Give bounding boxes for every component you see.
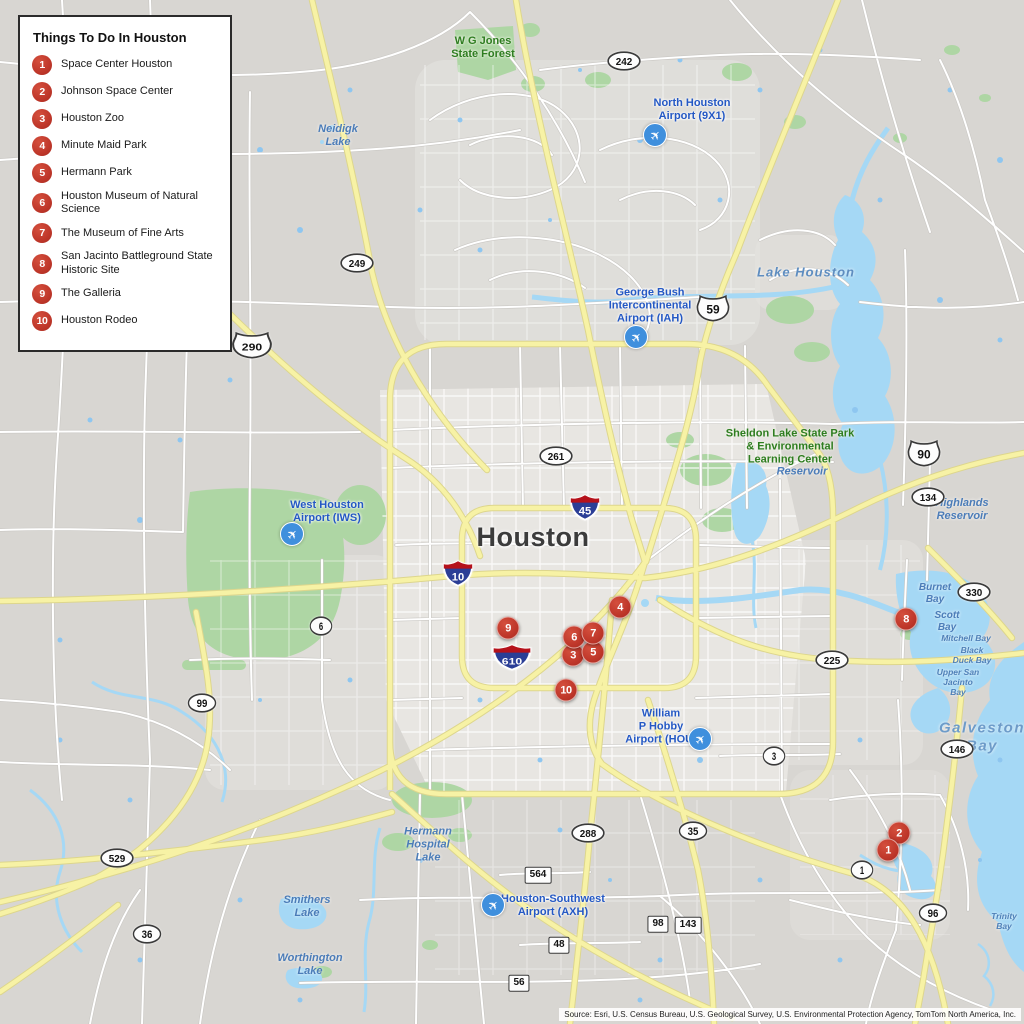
legend-badge-9: 9	[32, 284, 52, 304]
route-shield-59: 59	[697, 294, 730, 323]
label-west-houston-airport: West Houston Airport (IWS)	[290, 499, 364, 525]
svg-text:96: 96	[928, 907, 939, 920]
svg-text:610: 610	[502, 657, 522, 667]
label-neidigk-lake: Neidigk Lake	[318, 123, 358, 149]
legend-badge-3: 3	[32, 109, 52, 129]
svg-text:225: 225	[824, 656, 841, 667]
svg-text:59: 59	[706, 303, 720, 317]
svg-text:45: 45	[579, 505, 591, 517]
route-shield-96: 96	[919, 903, 948, 923]
legend-item-6: 6Houston Museum of Natural Science	[32, 190, 220, 216]
route-shield-48: 48	[548, 937, 569, 954]
legend-title: Things To Do In Houston	[33, 30, 220, 45]
airplane-icon	[624, 325, 648, 349]
label-sheldon-lake-state-park: Sheldon Lake State Park & Environmental …	[726, 428, 854, 467]
route-shield-146: 146	[940, 739, 974, 759]
route-shield-134: 134	[911, 487, 945, 507]
legend-badge-7: 7	[32, 223, 52, 243]
label-burnet-bay: Burnet Bay	[919, 582, 951, 606]
label-houston-southwest-airport: Houston-Southwest Airport (AXH)	[501, 893, 605, 919]
legend-badge-2: 2	[32, 82, 52, 102]
map-marker-4[interactable]: 4	[609, 596, 632, 619]
svg-text:35: 35	[688, 825, 699, 838]
svg-text:10: 10	[452, 571, 464, 583]
svg-text:290: 290	[242, 342, 262, 353]
legend-item-1: 1Space Center Houston	[32, 55, 220, 75]
label-wg-jones-state-forest: W G Jones State Forest	[451, 35, 515, 61]
svg-text:134: 134	[920, 493, 937, 504]
route-shield-99: 99	[188, 693, 217, 713]
airplane-icon	[280, 522, 304, 546]
airplane-icon	[481, 893, 505, 917]
svg-text:90: 90	[917, 448, 931, 462]
route-shield-143: 143	[675, 917, 702, 934]
legend-item-label: Space Center Houston	[61, 58, 172, 71]
legend-item-8: 8San Jacinto Battleground State Historic…	[32, 250, 220, 276]
label-houston-city: Houston	[477, 522, 590, 554]
svg-text:288: 288	[580, 829, 597, 840]
route-shield-330: 330	[957, 582, 991, 602]
legend-item-9: 9The Galleria	[32, 284, 220, 304]
route-shield-290: 290	[232, 331, 272, 360]
label-hermann-hospital-lake: Hermann Hospital Lake	[404, 826, 452, 865]
route-shield-288: 288	[571, 823, 605, 843]
label-black-duck-bay: Black Duck Bay	[953, 645, 992, 665]
svg-text:330: 330	[966, 588, 983, 599]
label-upper-san-jacinto-bay: Upper San Jacinto Bay	[937, 667, 980, 697]
route-shield-10: 10	[443, 560, 474, 587]
route-shield-45: 45	[570, 494, 601, 521]
attribution: Source: Esri, U.S. Census Bureau, U.S. G…	[559, 1008, 1021, 1021]
label-smithers-lake: Smithers Lake	[283, 894, 330, 920]
legend-item-4: 4Minute Maid Park	[32, 136, 220, 156]
svg-text:6: 6	[319, 620, 324, 633]
legend-badge-6: 6	[32, 193, 52, 213]
legend-items: 1Space Center Houston2Johnson Space Cent…	[32, 55, 220, 331]
label-scott-bay: Scott Bay	[935, 610, 960, 634]
legend-item-label: Johnson Space Center	[61, 85, 173, 98]
map-stage: W G Jones State ForestNorth Houston Airp…	[0, 0, 1024, 1024]
legend-badge-1: 1	[32, 55, 52, 75]
legend-badge-10: 10	[32, 311, 52, 331]
svg-text:36: 36	[142, 928, 153, 941]
label-mitchell-bay: Mitchell Bay	[941, 633, 991, 643]
svg-text:242: 242	[616, 57, 633, 68]
route-shield-261: 261	[539, 446, 573, 466]
label-worthington-lake: Worthington Lake	[277, 952, 342, 978]
map-marker-7[interactable]: 7	[582, 622, 605, 645]
label-north-houston-airport: North Houston Airport (9X1)	[654, 97, 731, 123]
route-shield-1: 1	[851, 860, 874, 880]
legend-badge-4: 4	[32, 136, 52, 156]
route-shield-610: 610	[492, 644, 532, 671]
legend-item-label: Houston Zoo	[61, 112, 124, 125]
label-lake-houston: Lake Houston	[757, 264, 855, 279]
legend-item-label: Hermann Park	[61, 166, 132, 179]
map-marker-10[interactable]: 10	[555, 679, 578, 702]
legend-item-5: 5Hermann Park	[32, 163, 220, 183]
route-shield-36: 36	[133, 924, 162, 944]
airplane-icon	[643, 123, 667, 147]
route-shield-90: 90	[908, 439, 941, 468]
svg-text:261: 261	[548, 452, 565, 463]
svg-text:3: 3	[772, 750, 777, 763]
legend-badge-8: 8	[32, 254, 52, 274]
label-william-p-hobby-airport: William P Hobby Airport (HOU)	[625, 708, 697, 747]
svg-text:529: 529	[109, 854, 126, 865]
route-shield-35: 35	[679, 821, 708, 841]
route-shield-6: 6	[310, 616, 333, 636]
legend-item-2: 2Johnson Space Center	[32, 82, 220, 102]
label-george-bush-airport: George Bush Intercontinental Airport (IA…	[609, 287, 692, 326]
legend-item-3: 3Houston Zoo	[32, 109, 220, 129]
svg-text:249: 249	[349, 259, 366, 270]
airplane-icon	[688, 727, 712, 751]
route-shield-3: 3	[763, 746, 786, 766]
legend: Things To Do In Houston 1Space Center Ho…	[18, 15, 232, 352]
label-reservoir: Reservoir	[777, 466, 828, 479]
route-shield-225: 225	[815, 650, 849, 670]
route-shield-56: 56	[508, 975, 529, 992]
legend-item-label: Houston Museum of Natural Science	[61, 190, 220, 216]
route-shield-249: 249	[340, 253, 374, 273]
map-marker-1[interactable]: 1	[877, 839, 900, 862]
svg-text:99: 99	[197, 697, 208, 710]
legend-item-label: Houston Rodeo	[61, 314, 137, 327]
legend-item-label: San Jacinto Battleground State Historic …	[61, 250, 220, 276]
route-shield-564: 564	[525, 867, 552, 884]
legend-item-label: Minute Maid Park	[61, 139, 147, 152]
map-marker-9[interactable]: 9	[497, 617, 520, 640]
label-trinity-bay: Trinity Bay	[991, 911, 1017, 931]
route-shield-242: 242	[607, 51, 641, 71]
route-shield-529: 529	[100, 848, 134, 868]
legend-badge-5: 5	[32, 163, 52, 183]
legend-item-7: 7The Museum of Fine Arts	[32, 223, 220, 243]
svg-text:146: 146	[949, 745, 966, 756]
route-shield-98: 98	[647, 916, 668, 933]
svg-text:1: 1	[860, 864, 865, 877]
map-marker-8[interactable]: 8	[895, 608, 918, 631]
legend-item-label: The Galleria	[61, 287, 121, 300]
legend-item-label: The Museum of Fine Arts	[61, 227, 184, 240]
legend-item-10: 10Houston Rodeo	[32, 311, 220, 331]
